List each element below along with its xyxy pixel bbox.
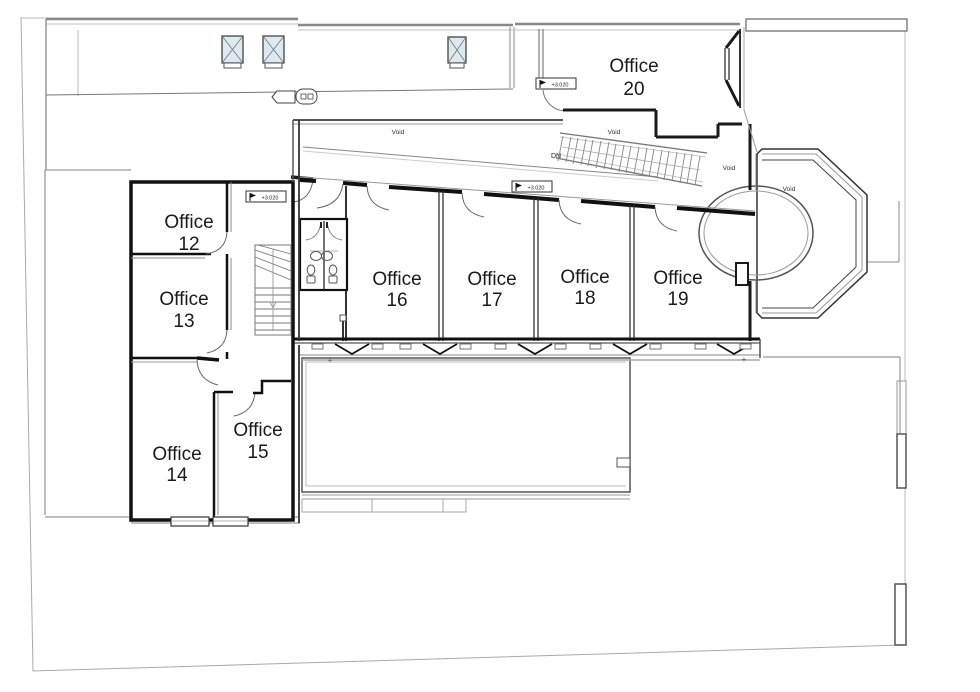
stair-direction-label: DN — [551, 153, 561, 160]
skylight-3 — [448, 37, 466, 68]
wall-16-17 — [439, 191, 443, 341]
office-16-door-arc — [367, 186, 389, 210]
office-20-label: Office — [609, 56, 658, 77]
office-17-number: 17 — [481, 290, 502, 311]
bay-corner-braces — [726, 31, 739, 106]
office-20-number: 20 — [623, 79, 644, 100]
office-19-number: 19 — [667, 289, 688, 310]
office-13-number: 13 — [173, 311, 194, 332]
void-label-bay-top: Void — [723, 165, 736, 172]
boundary-wall-right-lower — [895, 584, 906, 645]
svg-text:+3.020: +3.020 — [552, 83, 569, 89]
level-marker-office-20: +3.020 — [536, 78, 576, 89]
office-19-door-arc — [655, 207, 677, 231]
wall-17-18 — [534, 198, 538, 341]
stair-down — [556, 133, 707, 186]
office-20-door-arc — [543, 90, 566, 111]
wc-lobby-door-arc — [317, 184, 343, 208]
window-frames — [312, 344, 751, 349]
left-block-windows — [171, 515, 248, 526]
svg-text:+3.020: +3.020 — [528, 186, 545, 192]
office-14-number: 14 — [166, 465, 188, 486]
wc-block — [300, 219, 347, 290]
boundary-wall-right-upper — [897, 381, 906, 434]
octagon-bay — [699, 110, 867, 341]
floor-plan-sheet: Office 12 Office 13 Office 14 Office 15 … — [0, 0, 980, 692]
office-18-label: Office — [560, 267, 609, 288]
boundary-wall-top-right — [746, 19, 907, 31]
boundary-wall-right-mid — [897, 434, 906, 488]
office-12-number: 12 — [178, 234, 199, 255]
office-14-label: Office — [152, 444, 201, 465]
office-15-label: Office — [233, 420, 282, 441]
roof-notch — [617, 458, 630, 467]
void-label-corridor: Void — [392, 129, 405, 136]
office-18-number: 18 — [574, 288, 595, 309]
skylight-2 — [263, 36, 284, 68]
void-edge-line — [303, 147, 658, 177]
lower-flat-roof — [302, 357, 900, 512]
office-19-label: Office — [653, 268, 702, 289]
office-17-label: Office — [467, 269, 516, 290]
void-label-bay: Void — [783, 186, 796, 193]
level-marker-office-12: +3.020 — [246, 191, 286, 202]
office-15-number: 15 — [247, 442, 268, 463]
survey-plus-mark-right: + — [742, 355, 747, 364]
office-16-label: Office — [372, 269, 421, 290]
corridor-void-strip — [291, 120, 707, 202]
floor-plan-drawing: Office 12 Office 13 Office 14 Office 15 … — [0, 0, 980, 692]
survey-plus-mark-left: + — [328, 356, 333, 365]
level-marker-corridor: +3.020 — [512, 181, 552, 192]
roof-vent-fixture — [272, 89, 317, 104]
void-label-stair: Void — [608, 129, 621, 136]
skylight-1 — [222, 36, 243, 68]
office-16-number: 16 — [386, 290, 407, 311]
office-18-door-arc — [559, 200, 581, 224]
wall-stub — [736, 263, 748, 285]
window-opening-indicators — [335, 344, 751, 354]
wall-18-19 — [630, 205, 634, 341]
office-17-door-arc — [462, 193, 484, 217]
svg-text:+3.020: +3.020 — [262, 196, 279, 202]
office-13-label: Office — [159, 289, 208, 310]
office-12-label: Office — [164, 212, 213, 233]
